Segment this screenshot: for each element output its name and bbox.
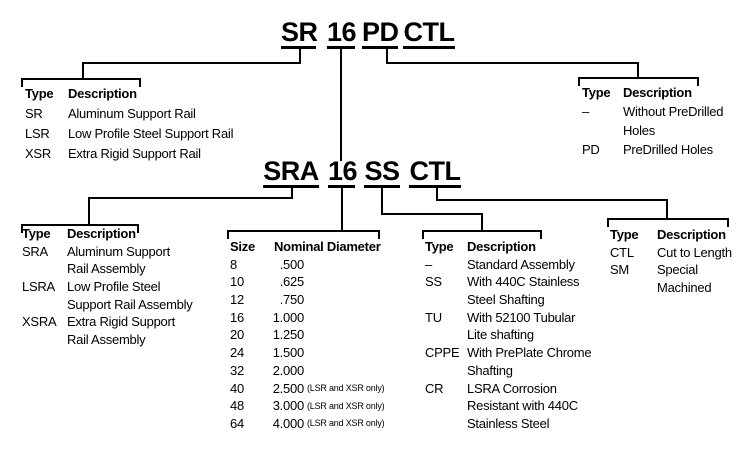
size-cell: 20 <box>230 327 244 342</box>
connector-line <box>697 77 699 86</box>
size-cell: 8 <box>230 257 237 272</box>
size-cell: 64 <box>230 416 244 431</box>
connector-line <box>299 48 301 63</box>
description-cell: Without PreDrilled <box>623 104 723 119</box>
size-cell: 12 <box>230 292 244 307</box>
diameter-cell: 1.000 <box>258 310 304 325</box>
diameter-cell: .500 <box>258 257 304 272</box>
size-note: (LSR and XSR only) <box>307 401 384 411</box>
diameter-cell: .750 <box>258 292 304 307</box>
type-cell: SR <box>25 106 43 121</box>
connector-line <box>88 197 90 225</box>
part-token-rail-top: SR <box>281 20 316 49</box>
description-cell: With 52100 Tubular <box>467 310 575 325</box>
description-cell: Low Profile Steel Support Rail <box>68 126 233 141</box>
size-cell: 40 <box>230 381 244 396</box>
description-cell: Rail Assembly <box>67 332 145 347</box>
connector-line <box>578 77 699 79</box>
connector-line <box>436 199 668 201</box>
connector-line <box>21 78 141 80</box>
diameter-cell: 1.500 <box>258 345 304 360</box>
type-cell: PD <box>582 142 600 157</box>
description-header: Description <box>657 227 726 242</box>
connector-line <box>607 218 729 220</box>
size-cell: 24 <box>230 345 244 360</box>
type-cell: XSR <box>25 146 51 161</box>
type-cell: SM <box>610 262 629 277</box>
description-cell: Lite shafting <box>467 327 534 342</box>
description-cell: Support Rail Assembly <box>67 297 193 312</box>
size-note: (LSR and XSR only) <box>307 418 384 428</box>
connector-line <box>540 230 542 239</box>
type-cell: SRA <box>22 244 48 259</box>
connector-line <box>88 197 293 199</box>
connector-line <box>666 199 668 219</box>
description-cell: Holes <box>623 123 655 138</box>
type-header: Type <box>425 239 453 254</box>
diameter-cell: 1.250 <box>258 327 304 342</box>
connector-line <box>386 48 388 63</box>
type-header: Type <box>25 86 53 101</box>
connector-line <box>637 62 639 78</box>
description-cell: Steel Shafting <box>467 292 544 307</box>
type-cell: SS <box>425 274 442 289</box>
connector-line <box>82 62 301 64</box>
connector-line <box>481 213 483 231</box>
ordering-code-diagram: SR 16 PD CTL SRA 16 SS CTL Type Descript… <box>0 0 750 452</box>
size-cell: 48 <box>230 398 244 413</box>
type-cell: LSR <box>25 126 50 141</box>
description-cell: With PrePlate Chrome <box>467 345 591 360</box>
connector-line <box>422 230 424 239</box>
description-cell: Cut to Length <box>657 245 732 260</box>
part-token-size-bottom: 16 <box>328 159 355 188</box>
connector-line <box>727 218 729 227</box>
connector-line <box>340 48 342 161</box>
connector-line <box>227 230 229 239</box>
description-cell: Machined <box>657 280 711 295</box>
connector-line <box>137 224 139 233</box>
connector-line <box>381 213 483 215</box>
type-cell: TU <box>425 310 442 325</box>
part-token-length-bottom: CTL <box>409 159 461 188</box>
connector-line <box>82 62 84 79</box>
description-cell: Stainless Steel <box>467 416 549 431</box>
description-cell: Resistant with 440C <box>467 398 578 413</box>
connector-line <box>139 78 141 87</box>
size-cell: 32 <box>230 363 244 378</box>
type-cell: CPPE <box>425 345 459 360</box>
connector-line <box>381 187 383 215</box>
size-header: Size <box>230 239 255 254</box>
description-cell: With 440C Stainless <box>467 274 579 289</box>
type-cell: XSRA <box>22 314 56 329</box>
description-cell: Rail Assembly <box>67 261 145 276</box>
connector-line <box>378 230 380 239</box>
description-cell: PreDrilled Holes <box>623 142 713 157</box>
size-note: (LSR and XSR only) <box>307 383 384 393</box>
diameter-header: Nominal Diameter <box>274 239 381 254</box>
connector-line <box>607 218 609 227</box>
description-cell: Shafting <box>467 363 513 378</box>
description-cell: Aluminum Support <box>67 244 170 259</box>
description-cell: Low Profile Steel <box>67 279 160 294</box>
connector-line <box>578 77 580 86</box>
connector-line <box>21 78 23 87</box>
part-token-length-top: CTL <box>403 20 455 49</box>
part-token-shaft-bottom: SS <box>364 159 400 188</box>
type-cell: CR <box>425 381 443 396</box>
description-header: Description <box>467 239 536 254</box>
description-cell: LSRA Corrosion <box>467 381 557 396</box>
connector-line <box>227 230 380 232</box>
description-header: Description <box>67 226 136 241</box>
description-cell: Extra Rigid Support Rail <box>68 146 201 161</box>
type-cell: CTL <box>610 245 634 260</box>
description-header: Description <box>68 86 137 101</box>
diameter-cell: 2.500 <box>258 381 304 396</box>
description-cell: Special <box>657 262 698 277</box>
type-cell: LSRA <box>22 279 55 294</box>
diameter-cell: 2.000 <box>258 363 304 378</box>
description-cell: Extra Rigid Support <box>67 314 175 329</box>
description-cell: Aluminum Support Rail <box>68 106 196 121</box>
type-header: Type <box>22 226 50 241</box>
part-token-rail-bottom: SRA <box>263 159 319 188</box>
diameter-cell: .625 <box>258 274 304 289</box>
size-cell: 10 <box>230 274 244 289</box>
description-cell: Standard Assembly <box>467 257 575 272</box>
connector-line <box>386 62 639 64</box>
part-token-drill-top: PD <box>362 20 398 49</box>
description-header: Description <box>623 85 692 100</box>
type-cell: – <box>582 104 589 119</box>
type-cell: – <box>425 257 432 272</box>
part-token-size-top: 16 <box>327 20 355 49</box>
diameter-cell: 4.000 <box>258 416 304 431</box>
connector-line <box>341 187 343 231</box>
type-header: Type <box>582 85 610 100</box>
connector-line <box>422 230 542 232</box>
size-cell: 16 <box>230 310 244 325</box>
diameter-cell: 3.000 <box>258 398 304 413</box>
type-header: Type <box>610 227 638 242</box>
